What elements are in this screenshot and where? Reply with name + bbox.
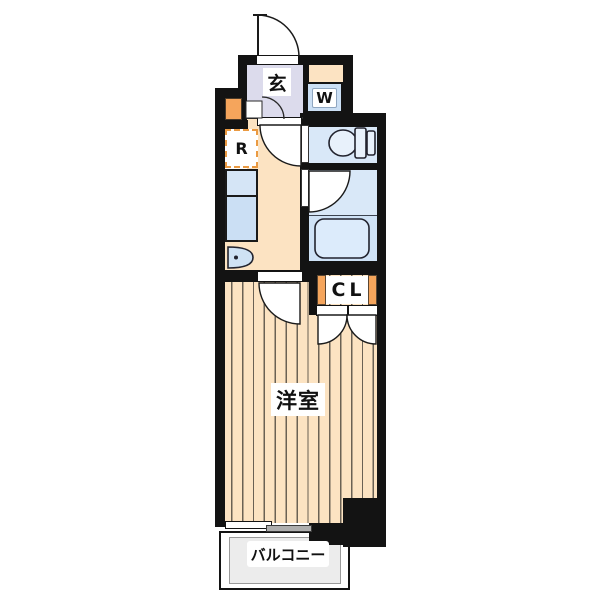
window-pane-right — [266, 525, 312, 532]
kitchen-counter-top — [227, 171, 256, 197]
refrigerator-space: R — [225, 129, 258, 168]
entrance-door-arc — [253, 15, 299, 57]
toilet-fixture — [329, 128, 375, 158]
closet-strip-right — [368, 275, 377, 305]
closet-door-arc-left — [318, 315, 347, 344]
balcony-label: バルコニー — [247, 541, 329, 567]
closet-label: CL — [326, 276, 368, 304]
entrance-step-arc — [262, 97, 284, 119]
entrance-step — [246, 101, 262, 118]
fixtures-overlay — [0, 0, 600, 600]
refrigerator-label: R — [235, 139, 247, 158]
bathroom-door-arc — [309, 171, 350, 212]
room-door-arc — [259, 283, 300, 324]
main-room-label: 洋室 — [271, 383, 325, 416]
washer-label: W — [312, 88, 337, 108]
floor-plan: W R 玄 CL 洋室 バルコニー — [0, 0, 600, 600]
bathtub — [315, 219, 369, 258]
washer-space: W — [306, 82, 343, 113]
pipe-space — [225, 98, 242, 120]
hall-door-arc — [260, 125, 301, 166]
washbasin — [228, 247, 253, 268]
entrance-label: 玄 — [263, 68, 291, 96]
closet-door-arc-right — [347, 315, 376, 344]
closet-strip-left — [317, 275, 326, 305]
window-pane-left — [225, 521, 272, 529]
kitchen-counter — [225, 169, 258, 242]
